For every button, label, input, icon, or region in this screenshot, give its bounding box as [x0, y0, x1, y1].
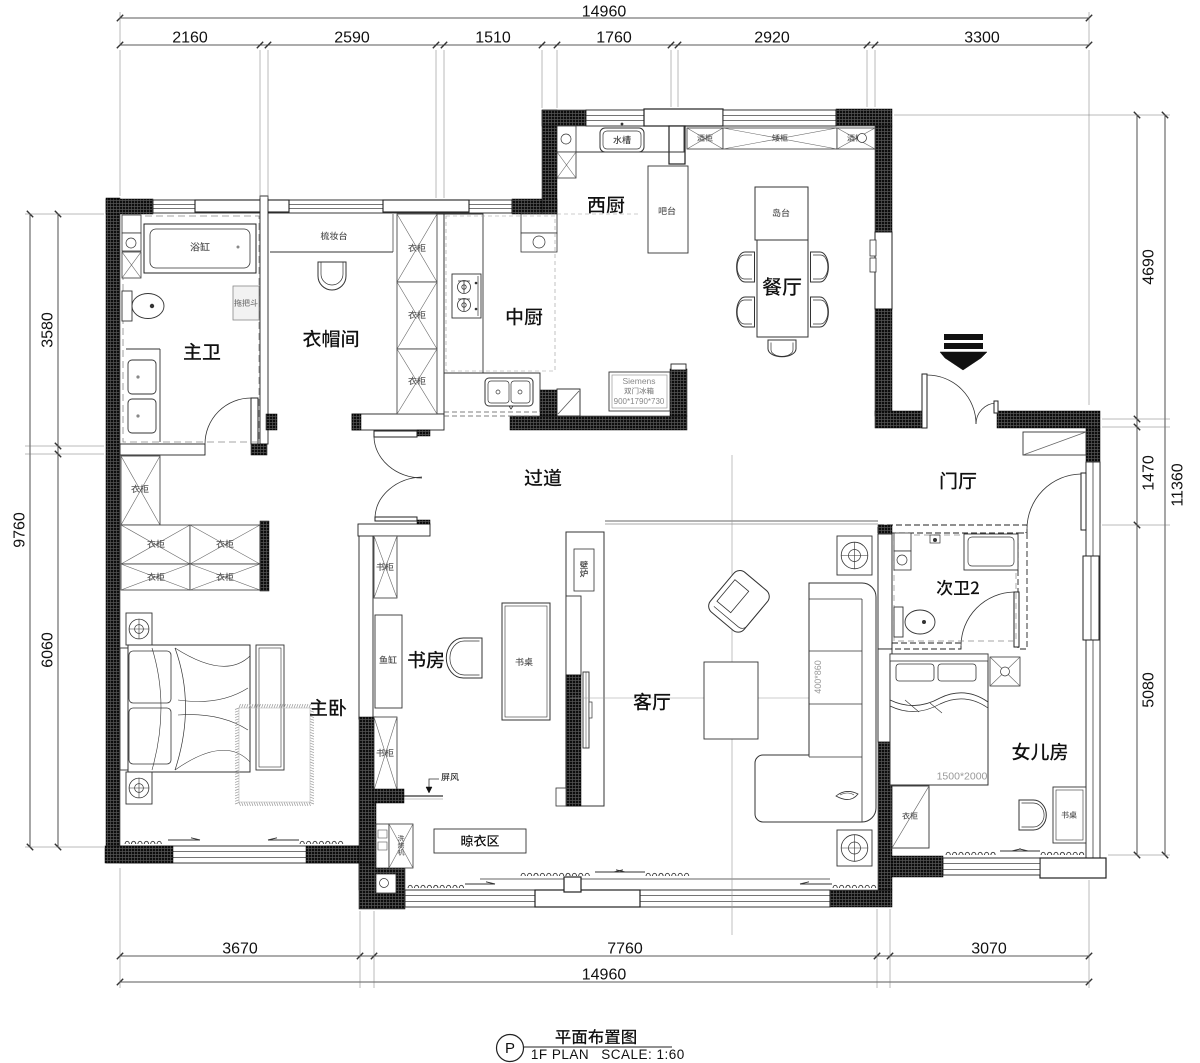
svg-text:2160: 2160	[172, 30, 208, 47]
svg-text:900*1790*730: 900*1790*730	[614, 397, 665, 406]
svg-text:3300: 3300	[964, 30, 1000, 47]
svg-text:14960: 14960	[582, 967, 627, 984]
svg-text:P: P	[505, 1040, 515, 1057]
svg-text:1F PLAN: 1F PLAN	[531, 1047, 589, 1062]
svg-text:4690: 4690	[1141, 249, 1158, 285]
svg-text:400*860: 400*860	[813, 660, 823, 694]
svg-text:6060: 6060	[40, 632, 57, 668]
svg-text:3070: 3070	[971, 941, 1007, 958]
svg-text:Siemens: Siemens	[622, 376, 655, 386]
svg-text:1510: 1510	[475, 30, 511, 47]
svg-text:2920: 2920	[754, 30, 790, 47]
svg-text:11360: 11360	[1170, 463, 1187, 506]
svg-text:1470: 1470	[1141, 455, 1158, 491]
svg-text:1500*2000: 1500*2000	[937, 771, 988, 783]
svg-text:1760: 1760	[596, 30, 632, 47]
svg-text:9760: 9760	[12, 512, 29, 548]
svg-text:2590: 2590	[334, 30, 370, 47]
svg-text:5080: 5080	[1141, 672, 1158, 708]
svg-text:3580: 3580	[40, 312, 57, 348]
svg-text:3670: 3670	[222, 941, 258, 958]
svg-text:7760: 7760	[607, 941, 643, 958]
svg-text:14960: 14960	[582, 4, 627, 21]
svg-text:SCALE: 1:60: SCALE: 1:60	[601, 1047, 685, 1062]
